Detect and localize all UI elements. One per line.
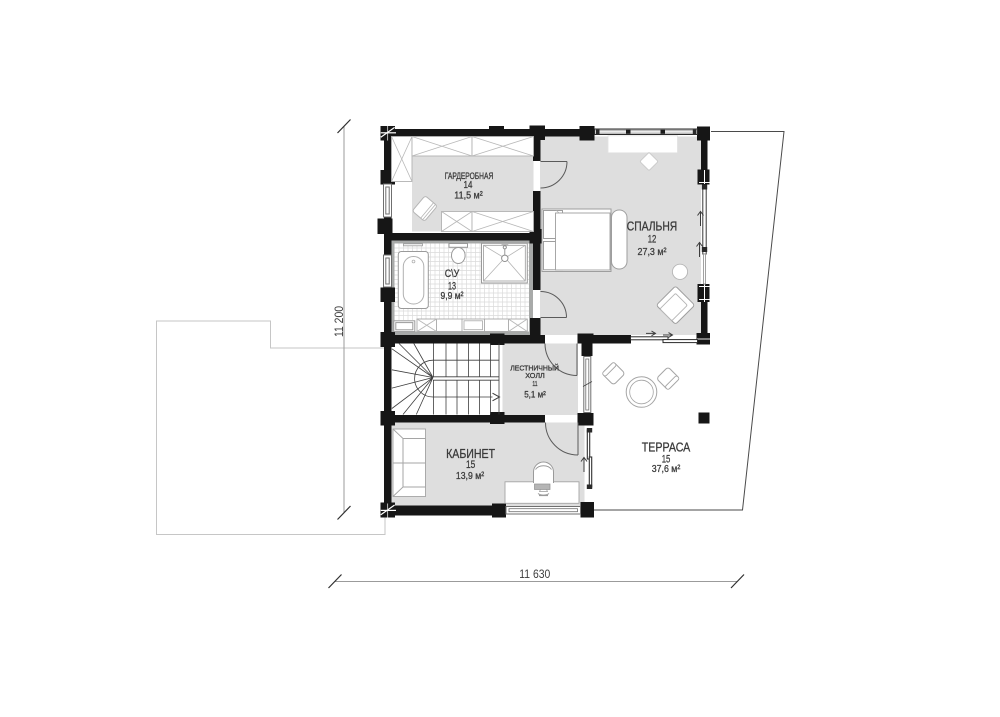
svg-text:СПАЛЬНЯ: СПАЛЬНЯ bbox=[627, 220, 678, 234]
svg-text:9,9 м²: 9,9 м² bbox=[441, 291, 464, 302]
svg-text:5,1 м²: 5,1 м² bbox=[524, 389, 546, 400]
svg-text:ТЕРРАСА: ТЕРРАСА bbox=[642, 441, 691, 455]
svg-text:13,9 м²: 13,9 м² bbox=[456, 470, 485, 482]
svg-text:27,3 м²: 27,3 м² bbox=[638, 246, 667, 258]
svg-text:С\У: С\У bbox=[445, 268, 460, 280]
svg-text:11: 11 bbox=[532, 379, 537, 388]
svg-text:11 630: 11 630 bbox=[519, 569, 550, 581]
svg-text:11,5 м²: 11,5 м² bbox=[454, 190, 483, 201]
svg-text:11 200: 11 200 bbox=[334, 306, 346, 337]
svg-text:37,6 м²: 37,6 м² bbox=[652, 463, 681, 475]
svg-text:12: 12 bbox=[648, 234, 657, 246]
